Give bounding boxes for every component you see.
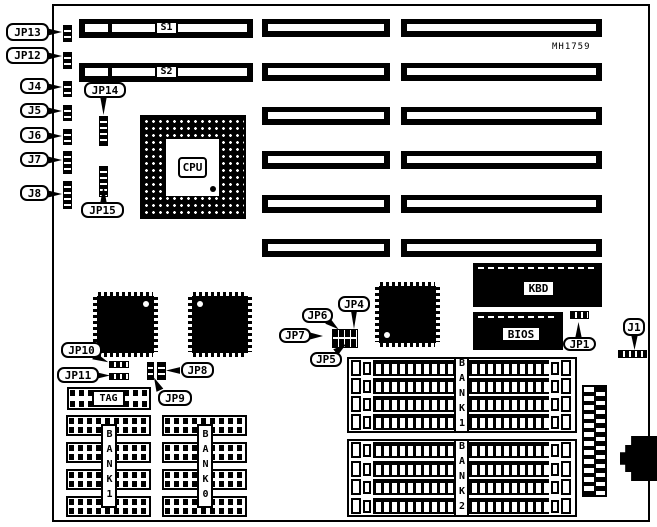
- callout-j6: J6: [20, 127, 49, 143]
- bios-chip: BIOS: [473, 312, 563, 350]
- jumper-jp9: [147, 362, 154, 380]
- slot-s1-label: S1: [155, 21, 178, 35]
- jumper-jp11: [109, 373, 129, 380]
- slot-s2-label: S2: [155, 65, 178, 79]
- slot-stripe: [268, 112, 384, 119]
- socket-end: [351, 442, 361, 458]
- jumper-jp14: [99, 116, 108, 146]
- jumper-j8: [63, 181, 72, 209]
- socket-clip: [551, 463, 559, 476]
- slot-notch: [108, 24, 112, 32]
- socket-clip: [551, 398, 559, 411]
- callout-jp6: JP6: [302, 308, 333, 323]
- power-connector: [582, 385, 607, 497]
- slot-s1: S1: [79, 19, 253, 38]
- isa-slot-segment: [262, 151, 390, 169]
- callout-j1: J1: [623, 318, 645, 336]
- qfp-chip-1: [93, 292, 158, 357]
- slot-stripe: [407, 200, 596, 207]
- callout-j4: J4: [20, 78, 49, 94]
- isa-slot-segment: [262, 63, 390, 81]
- part-number: MH1759: [552, 43, 591, 52]
- bank-label-right-2: BANK2: [454, 439, 469, 517]
- socket-clip: [363, 500, 371, 513]
- power-pin-column: [584, 387, 596, 495]
- slot-stripe: [407, 156, 596, 163]
- chip-pins: [380, 343, 435, 347]
- jumper-j5: [63, 105, 72, 121]
- jumper-j1: [618, 350, 647, 358]
- cpu-socket: CPU: [140, 115, 246, 219]
- callout-jp4: JP4: [338, 296, 370, 312]
- callout-jp11: JP11: [57, 367, 99, 383]
- socket-end: [561, 396, 571, 412]
- isa-slot-segment: [262, 19, 390, 37]
- qfp-chip-2: [188, 292, 252, 357]
- socket-clip: [363, 463, 371, 476]
- jumper-j4: [63, 81, 72, 97]
- isa-slot-segment: [401, 19, 602, 37]
- socket-end: [561, 461, 571, 477]
- socket-end: [561, 479, 571, 495]
- socket-end: [351, 479, 361, 495]
- callout-jp5: JP5: [310, 352, 342, 367]
- isa-slot-segment: [262, 239, 390, 257]
- isa-slot-segment: [262, 195, 390, 213]
- jumper-jp12: [63, 52, 72, 69]
- qfp-chip-3: [375, 282, 440, 347]
- jumper-j6: [63, 129, 72, 145]
- callout-jp15: JP15: [81, 202, 124, 218]
- bank-label-left-0: BANK0: [197, 424, 213, 508]
- bank-label-left-1: BANK1: [101, 424, 117, 508]
- slot-stripe: [268, 156, 384, 163]
- slot-stripe: [268, 68, 384, 75]
- chip-pin1-dot: [143, 301, 149, 307]
- socket-end: [561, 498, 571, 514]
- callout-jp10: JP10: [61, 342, 102, 358]
- slot-stripe: [407, 68, 596, 75]
- chip-pins: [436, 287, 440, 342]
- jumper-jp1: [570, 311, 589, 319]
- cpu-label: CPU: [178, 157, 208, 178]
- kbd-label: KBD: [522, 280, 555, 297]
- chip-pins: [193, 353, 247, 357]
- callout-j8: J8: [20, 185, 49, 201]
- socket-end: [561, 378, 571, 394]
- chip-pins: [98, 353, 153, 357]
- chip-pin1-dot: [384, 332, 390, 338]
- socket-clip: [551, 362, 559, 375]
- jumper-j7: [63, 151, 72, 174]
- socket-clip: [363, 380, 371, 393]
- chip-pin1-dot: [197, 301, 203, 307]
- isa-slot-segment: [262, 107, 390, 125]
- slot-notch: [108, 68, 112, 76]
- chip-notch-line: [478, 316, 558, 318]
- callout-jp13: JP13: [6, 23, 49, 41]
- socket-clip: [363, 362, 371, 375]
- bank-label-right-1: BANK1: [454, 357, 469, 433]
- slot-stripe: [268, 24, 384, 31]
- power-pin-column: [596, 387, 606, 495]
- slot-stripe: [268, 200, 384, 207]
- callout-j7: J7: [20, 152, 49, 167]
- socket-clip: [551, 481, 559, 494]
- socket-clip: [363, 481, 371, 494]
- socket-end: [351, 414, 361, 430]
- socket-clip: [363, 444, 371, 457]
- socket-clip: [551, 444, 559, 457]
- socket-end: [561, 442, 571, 458]
- socket-end: [351, 360, 361, 376]
- jumper-jp10: [109, 361, 129, 368]
- motherboard-diagram: { "diagram": { "part_number": "MH1759", …: [0, 0, 657, 527]
- jumper-jp8: [157, 362, 166, 380]
- chip-notch-line: [478, 267, 597, 269]
- socket-clip: [551, 416, 559, 429]
- jumper-jp13: [63, 25, 72, 42]
- isa-slot-segment: [401, 63, 602, 81]
- socket-end: [561, 360, 571, 376]
- isa-slot-segment: [401, 239, 602, 257]
- callout-jp1: JP1: [563, 337, 596, 351]
- socket-clip: [363, 398, 371, 411]
- kbd-chip: KBD: [473, 263, 602, 307]
- bios-label: BIOS: [501, 326, 541, 342]
- socket-clip: [363, 416, 371, 429]
- isa-slot-segment: [401, 151, 602, 169]
- slot-stripe: [407, 112, 596, 119]
- isa-slot-segment: [401, 107, 602, 125]
- isa-slot-segment: [401, 195, 602, 213]
- socket-end: [351, 498, 361, 514]
- socket-clip: [551, 500, 559, 513]
- chip-pins: [154, 297, 158, 352]
- socket-clip: [551, 380, 559, 393]
- callout-jp9: JP9: [158, 390, 192, 406]
- socket-end: [351, 378, 361, 394]
- callout-jp14: JP14: [84, 82, 126, 98]
- tag-label: TAG: [92, 390, 125, 407]
- callout-jp8: JP8: [181, 362, 214, 378]
- callout-jp12: JP12: [6, 47, 49, 64]
- socket-end: [351, 461, 361, 477]
- socket-end: [351, 396, 361, 412]
- chip-pins: [248, 297, 252, 352]
- slot-s2: S2: [79, 63, 253, 82]
- slot-stripe: [407, 24, 596, 31]
- callout-jp7: JP7: [279, 328, 311, 343]
- callout-j5: J5: [20, 103, 49, 118]
- socket-end: [561, 414, 571, 430]
- slot-stripe: [407, 244, 596, 251]
- slot-stripe: [268, 244, 384, 251]
- cpu-pin1-dot: [210, 186, 216, 192]
